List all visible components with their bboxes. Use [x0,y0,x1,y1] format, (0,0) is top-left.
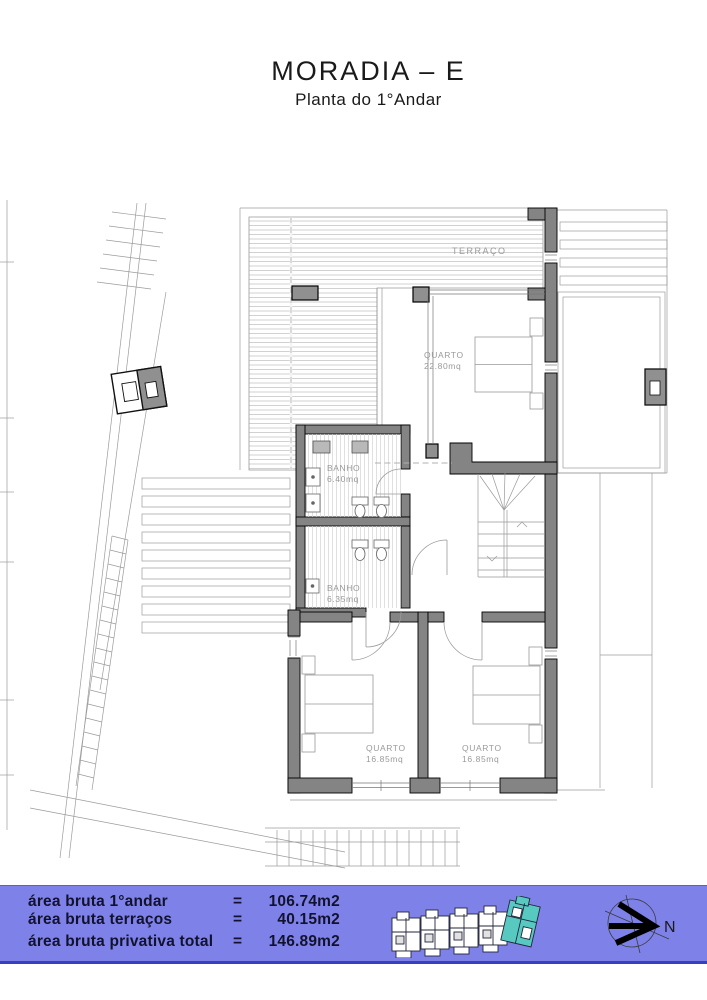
page-subtitle: Planta do 1°Andar [30,90,707,110]
terrace-label: TERRAÇO [452,246,507,257]
north-label: N [664,919,676,936]
legend-label: área bruta terraços [28,911,172,928]
title-block: MORADIA – E Planta do 1°Andar [0,56,707,110]
legend-label: área bruta 1°andar [28,893,168,910]
legend-row-3: área bruta privativa total = 146.89m2 [28,933,340,951]
room-label-quarto3: QUARTO 16.85mq [462,743,502,765]
legend-row-1: área bruta 1°andar = 106.74m2 [28,893,340,911]
legend-row-2: área bruta terraços = 40.15m2 [28,911,340,929]
site-plan-thumbnail [388,896,563,958]
legend-value: 40.15m2 [240,911,340,929]
boundary-structure-right [645,369,666,405]
legend-value: 106.74m2 [240,893,340,911]
boundary-structure-left [111,366,167,413]
north-compass: N [595,885,707,963]
stair-up-arrow [517,522,527,527]
room-label-quarto2: QUARTO 16.85mq [366,743,406,765]
stair-down-arrow [487,556,497,561]
page-title: MORADIA – E [30,56,707,87]
legend-value: 146.89m2 [240,933,340,951]
legend-label: área bruta privativa total [28,933,213,950]
staircase [478,473,545,577]
room-label-quarto-principal: QUARTO 22.80mq [424,350,464,372]
north-arrow-icon [609,904,654,943]
room-label-banho2: BANHO 6.35mq [327,583,360,605]
floor-plan [0,190,707,880]
highlighted-unit [501,896,542,947]
room-label-banho1: BANHO 6.40mq [327,463,360,485]
